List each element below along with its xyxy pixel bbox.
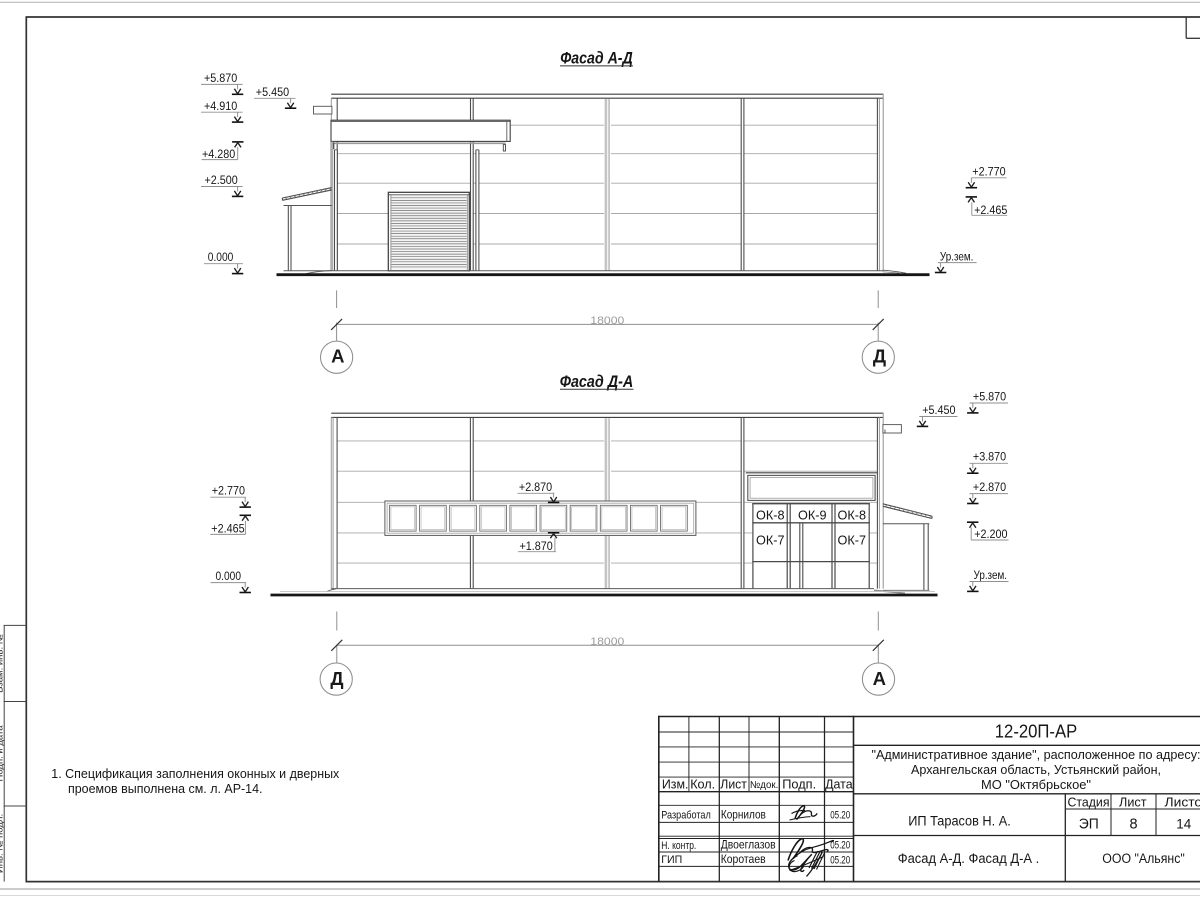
svg-text:проемов выполнена см. л. АР-14: проемов выполнена см. л. АР-14.	[68, 781, 263, 796]
svg-text:Коротаев: Коротаев	[721, 852, 766, 866]
svg-text:Инв. № подл.: Инв. № подл.	[0, 814, 5, 873]
svg-text:+5.870: +5.870	[973, 391, 1006, 403]
svg-text:+2.870: +2.870	[973, 482, 1006, 494]
svg-text:+5.450: +5.450	[256, 87, 289, 99]
svg-text:Лист: Лист	[720, 777, 747, 792]
svg-text:0.000: 0.000	[208, 252, 234, 264]
svg-text:Фасад Д-А: Фасад Д-А	[560, 373, 634, 391]
svg-text:12-20П-АР: 12-20П-АР	[995, 722, 1078, 742]
svg-text:0.000: 0.000	[216, 571, 242, 583]
svg-text:Д: Д	[330, 668, 343, 689]
svg-text:+2.870: +2.870	[519, 482, 552, 494]
svg-text:+1.870: +1.870	[520, 541, 553, 553]
svg-text:Фасад А-Д. Фасад Д-А .: Фасад А-Д. Фасад Д-А .	[898, 851, 1040, 866]
svg-text:+3.870: +3.870	[973, 451, 1006, 463]
svg-text:18000: 18000	[590, 636, 624, 648]
svg-text:+5.450: +5.450	[922, 405, 955, 417]
svg-text:Лист: Лист	[1119, 794, 1147, 809]
svg-text:+4.280: +4.280	[202, 149, 235, 161]
svg-text:Подп.: Подп.	[782, 777, 816, 792]
svg-text:Ур.зем.: Ур.зем.	[940, 251, 974, 263]
svg-text:Стадия: Стадия	[1068, 795, 1110, 810]
svg-text:+2.465: +2.465	[211, 524, 244, 536]
svg-text:Листов: Листов	[1165, 794, 1200, 809]
svg-text:Подп. и дата: Подп. и дата	[0, 725, 5, 782]
svg-text:+2.500: +2.500	[205, 175, 238, 187]
svg-text:Архангельская область, Устьянс: Архангельская область, Устьянский район,	[911, 762, 1161, 777]
svg-text:Изм.: Изм.	[662, 777, 689, 792]
svg-text:+2.770: +2.770	[972, 166, 1005, 178]
svg-text:ОК-8: ОК-8	[756, 507, 785, 522]
svg-text:ОК-7: ОК-7	[838, 533, 867, 548]
svg-text:ИП Тарасов Н. А.: ИП Тарасов Н. А.	[908, 814, 1011, 829]
svg-text:Взам. инв. №: Взам. инв. №	[0, 634, 5, 693]
svg-text:18000: 18000	[590, 315, 624, 327]
svg-text:1. Спецификация заполнения око: 1. Спецификация заполнения оконных и две…	[51, 766, 339, 781]
svg-text:А: А	[873, 668, 886, 689]
svg-text:05.20: 05.20	[830, 854, 850, 866]
svg-text:Двоеглазов: Двоеглазов	[721, 838, 776, 852]
svg-text:Разработал: Разработал	[661, 809, 711, 821]
svg-text:ООО "Альянс": ООО "Альянс"	[1102, 851, 1185, 866]
svg-text:+2.200: +2.200	[974, 529, 1007, 541]
svg-text:+5.870: +5.870	[204, 73, 237, 85]
svg-text:МО "Октябрьское": МО "Октябрьское"	[981, 777, 1091, 792]
svg-text:05.20: 05.20	[830, 809, 850, 821]
svg-text:+4.910: +4.910	[204, 101, 237, 113]
svg-text:Кол.: Кол.	[690, 777, 715, 792]
svg-text:8: 8	[1129, 817, 1137, 833]
svg-text:Н. контр.: Н. контр.	[661, 840, 696, 852]
svg-text:+2.770: +2.770	[212, 486, 245, 498]
svg-text:Корнилов: Корнилов	[721, 808, 766, 822]
svg-text:"Административное здание", рас: "Административное здание", расположенное…	[872, 747, 1200, 762]
svg-text:№док.: №док.	[750, 780, 778, 791]
svg-text:ЭП: ЭП	[1079, 817, 1099, 833]
svg-text:Ур.зем.: Ур.зем.	[974, 570, 1008, 582]
svg-text:ОК-9: ОК-9	[798, 507, 827, 522]
svg-text:ГИП: ГИП	[661, 854, 682, 866]
svg-text:ОК-8: ОК-8	[838, 507, 867, 522]
svg-text:Д: Д	[873, 345, 886, 366]
svg-text:А: А	[331, 345, 344, 366]
svg-text:Фасад А-Д: Фасад А-Д	[560, 49, 633, 67]
svg-text:ОК-7: ОК-7	[756, 533, 785, 548]
svg-text:Дата: Дата	[825, 777, 853, 792]
svg-text:14: 14	[1176, 816, 1191, 832]
